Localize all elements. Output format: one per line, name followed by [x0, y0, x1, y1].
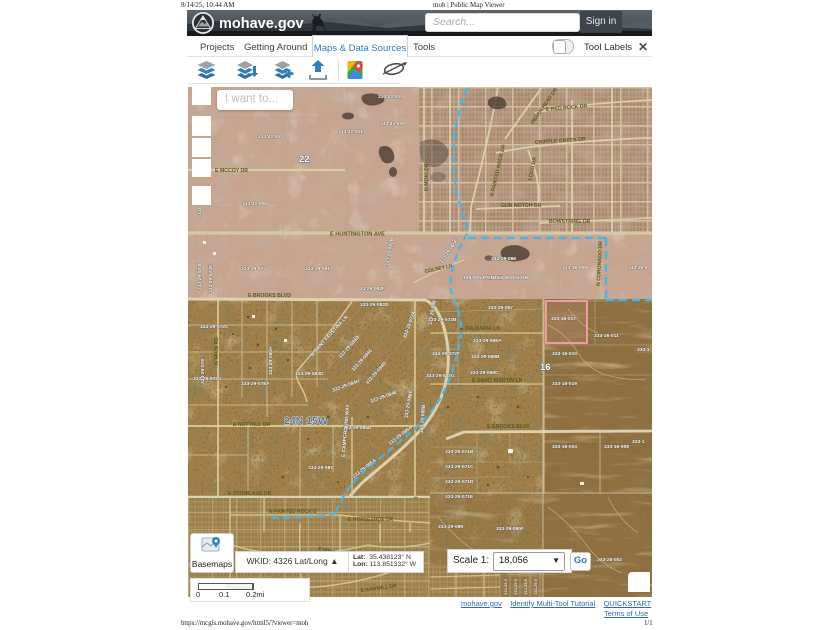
svg-text:333-29-068A: 333-29-068A: [473, 338, 502, 344]
svg-text:333-41-010: 333-41-010: [378, 94, 403, 100]
svg-text:GUN NOTCH DR: GUN NOTCH DR: [501, 203, 542, 209]
svg-text:333-29-071E: 333-29-071E: [445, 494, 474, 500]
svg-text:22: 22: [299, 154, 310, 165]
svg-text:333-29-068B: 333-29-068B: [471, 354, 500, 360]
svg-text:333-29-083D: 333-29-083D: [295, 371, 324, 377]
svg-text:333-29-073D: 333-29-073D: [197, 261, 203, 290]
svg-text:N MOKI DR: N MOKI DR: [424, 163, 430, 191]
svg-text:333-29-068C: 333-29-068C: [470, 370, 499, 376]
svg-text:333-29-080A: 333-29-080A: [268, 346, 274, 375]
svg-text:N TAOS RD: N TAOS RD: [214, 337, 220, 365]
svg-text:333-29-074: 333-29-074: [241, 266, 266, 272]
svg-text:333-16-0: 333-16-0: [628, 265, 648, 271]
svg-text:333-16-008: 333-16-008: [604, 444, 629, 450]
svg-text:333-29-072G: 333-29-072G: [193, 376, 222, 382]
svg-text:333-16-019: 333-16-019: [552, 381, 577, 387]
svg-text:333-29-089: 333-29-089: [438, 524, 463, 530]
svg-text:10930 N PAINTED ROCK DR: 10930 N PAINTED ROCK DR: [463, 275, 529, 281]
svg-text:333-1: 333-1: [637, 347, 650, 353]
svg-text:16: 16: [540, 362, 551, 373]
svg-text:BOWSTRING DR: BOWSTRING DR: [549, 219, 590, 225]
svg-text:E HORSESHOE DR: E HORSESHOE DR: [348, 517, 394, 523]
svg-text:E HUNTINGTON AVE: E HUNTINGTON AVE: [330, 232, 385, 238]
svg-text:333-29-0: 333-29-0: [523, 578, 528, 595]
svg-text:333: 333: [197, 207, 202, 215]
svg-text:333-29-0: 333-29-0: [503, 578, 508, 595]
svg-text:333-29-066: 333-29-066: [491, 256, 516, 262]
svg-text:E SAINT MARTIN LN: E SAINT MARTIN LN: [472, 378, 523, 384]
svg-text:333-29-071C: 333-29-071C: [445, 464, 474, 470]
svg-text:333-29-087: 333-29-087: [308, 465, 333, 471]
svg-text:333-16-010: 333-16-010: [552, 351, 577, 357]
svg-text:333-29-0: 333-29-0: [513, 578, 518, 595]
svg-text:333-29-071D: 333-29-071D: [445, 479, 474, 485]
svg-text:333-41-021: 333-41-021: [338, 129, 363, 135]
svg-text:333-16-011: 333-16-011: [594, 333, 619, 339]
svg-text:333-29-073E: 333-29-073E: [208, 264, 214, 293]
svg-text:333-29-0: 333-29-0: [533, 578, 538, 595]
svg-text:333-29-082F: 333-29-082F: [357, 286, 385, 292]
svg-text:333-29-072C: 333-29-072C: [200, 324, 229, 330]
svg-text:E NUTTALL DR: E NUTTALL DR: [233, 422, 271, 428]
svg-text:333-29-078A: 333-29-078A: [241, 381, 270, 387]
svg-text:333-16-004: 333-16-004: [552, 444, 577, 450]
svg-text:333-29-079: 333-29-079: [200, 359, 206, 384]
svg-text:333-29-067: 333-29-067: [488, 305, 513, 311]
svg-text:333-29-081: 333-29-081: [305, 266, 330, 272]
svg-text:E VIA MARIA LN: E VIA MARIA LN: [460, 326, 500, 332]
svg-text:mohave.gov: mohave.gov: [219, 16, 304, 32]
svg-text:333-1: 333-1: [632, 439, 645, 445]
svg-text:333-41-019: 333-41-019: [380, 121, 405, 127]
svg-text:333-41-014: 333-41-014: [258, 134, 283, 140]
svg-text:333-29-090F: 333-29-090F: [496, 526, 524, 532]
svg-text:333-41-006: 333-41-006: [242, 201, 267, 207]
svg-text:E BROOKS BLVD: E BROOKS BLVD: [248, 293, 291, 299]
svg-text:E BROOKS BLVD: E BROOKS BLVD: [487, 424, 530, 430]
svg-text:E STONE AXE DR: E STONE AXE DR: [228, 491, 272, 497]
svg-text:333-16-009: 333-16-009: [562, 265, 587, 271]
svg-text:333-29-071B: 333-29-071B: [445, 449, 474, 455]
svg-text:333-29-072B: 333-29-072B: [428, 317, 457, 323]
svg-text:E MCCOY DR: E MCCOY DR: [215, 168, 248, 174]
svg-text:N PAINTED ROCK D: N PAINTED ROCK D: [269, 509, 317, 515]
svg-text:24N 15W: 24N 15W: [284, 415, 328, 427]
